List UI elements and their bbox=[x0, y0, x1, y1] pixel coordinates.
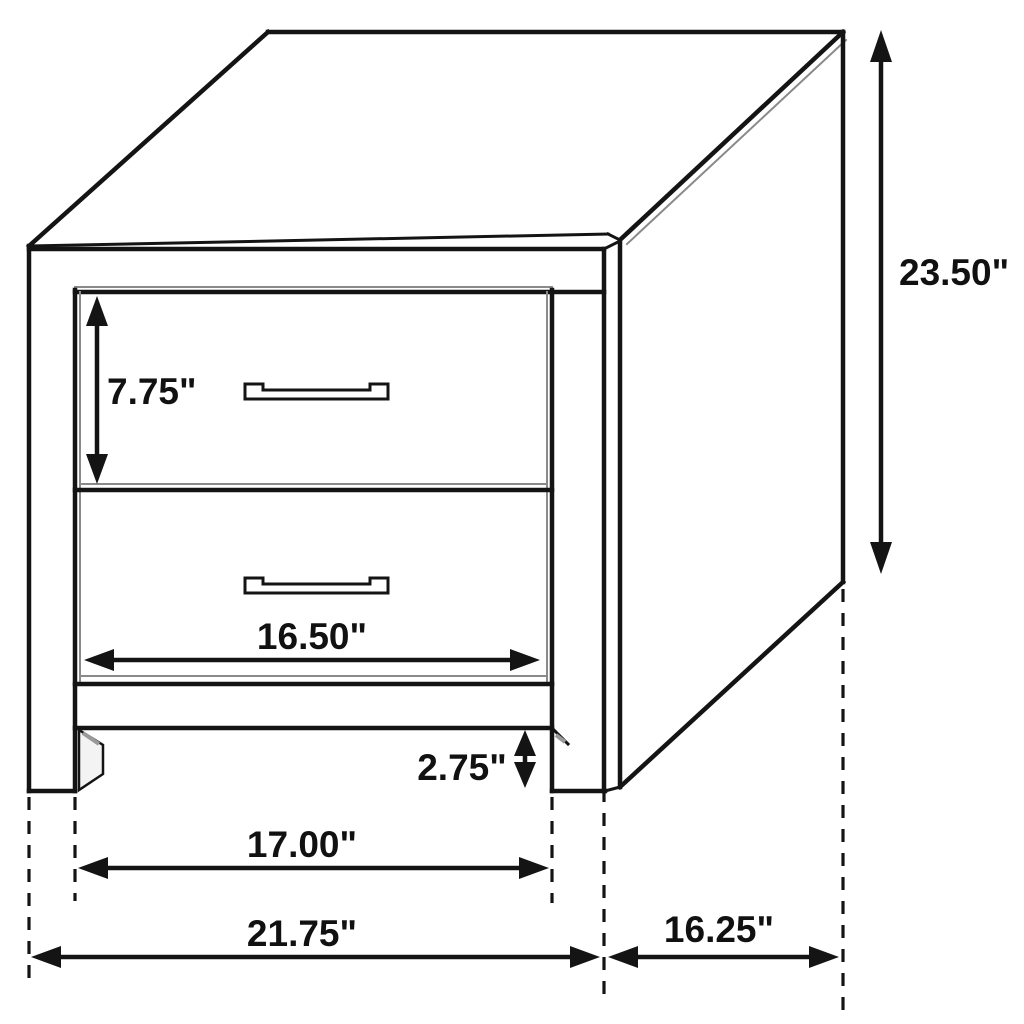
drawer-height-label: 7.75" bbox=[107, 371, 197, 412]
dimension-leg-span: 17.00" bbox=[78, 824, 549, 879]
height-arrowhead-down bbox=[870, 542, 892, 574]
side-bottom-edge bbox=[620, 582, 843, 787]
drawer-height-arrowhead-down bbox=[86, 454, 108, 484]
side-panel bbox=[620, 32, 843, 787]
drawer-height-arrowhead-up bbox=[86, 296, 108, 326]
leg-span-arrowhead-left bbox=[78, 857, 108, 879]
depth-arrowhead-left bbox=[608, 946, 638, 968]
drawer-width-arrowhead-right bbox=[510, 649, 540, 671]
dimension-height: 23.50" bbox=[870, 30, 1009, 574]
nightstand-drawing: 23.50" 7.75" 16.50" 2.75" 17.00" 21.75" bbox=[0, 0, 1024, 1024]
drawer-2-handle bbox=[245, 578, 388, 593]
depth-arrowhead-right bbox=[809, 946, 839, 968]
leg-span-arrowhead-right bbox=[519, 857, 549, 879]
top-right-edge-inner bbox=[627, 40, 846, 244]
top-panel bbox=[29, 32, 846, 249]
base-clearance-label: 2.75" bbox=[417, 747, 507, 788]
top-left-edge bbox=[29, 32, 268, 246]
height-label: 23.50" bbox=[899, 252, 1009, 293]
base-clearance-arrowhead-down bbox=[514, 762, 536, 788]
drawer-width-arrowhead-left bbox=[84, 649, 114, 671]
drawer-1 bbox=[245, 384, 388, 399]
overall-width-label: 21.75" bbox=[247, 913, 357, 954]
drawer-1-handle bbox=[245, 384, 388, 399]
dimension-overall-width: 21.75" bbox=[31, 913, 600, 968]
depth-label: 16.25" bbox=[664, 909, 774, 950]
top-right-edge bbox=[621, 32, 843, 239]
dimension-base-clearance: 2.75" bbox=[417, 730, 536, 788]
dimension-drawer-width: 16.50" bbox=[84, 616, 540, 671]
drawer-width-label: 16.50" bbox=[257, 616, 367, 657]
top-front-edge bbox=[29, 234, 608, 246]
right-leg-shading bbox=[556, 735, 565, 742]
height-arrowhead-up bbox=[870, 30, 892, 62]
overall-width-arrowhead-left bbox=[31, 946, 61, 968]
drawer-2 bbox=[245, 578, 388, 593]
top-underside-bevel bbox=[604, 241, 620, 249]
right-leg-bottom-bevel bbox=[605, 787, 620, 791]
front-frame bbox=[29, 246, 620, 791]
base-clearance-arrowhead-up bbox=[514, 730, 536, 756]
leg-span-label: 17.00" bbox=[247, 824, 357, 865]
dimension-drawer-height: 7.75" bbox=[86, 296, 197, 484]
overall-width-arrowhead-right bbox=[570, 946, 600, 968]
dimension-depth: 16.25" bbox=[608, 909, 839, 968]
dimension-diagram: 23.50" 7.75" 16.50" 2.75" 17.00" 21.75" bbox=[0, 0, 1024, 1024]
